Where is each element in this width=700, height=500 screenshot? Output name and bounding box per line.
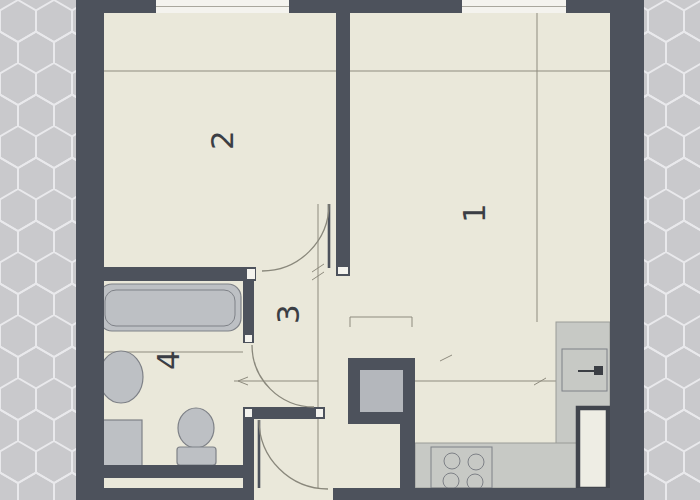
- floor-plan-photo: 1 2 3 4: [0, 0, 700, 500]
- hall-south-wall: [243, 407, 325, 419]
- washing-machine: [100, 420, 142, 466]
- wall-end-cap: [247, 269, 255, 279]
- interior-wall-room2-bath: [100, 267, 256, 281]
- exterior-wall-bottom: [104, 488, 243, 500]
- exterior-wall-top: [289, 0, 462, 13]
- exterior-wall-top: [104, 0, 156, 13]
- wall-end-cap: [245, 409, 252, 417]
- hex-wallpaper-left: [0, 0, 78, 500]
- bathtub: [99, 284, 241, 331]
- exterior-wall-left: [76, 0, 104, 500]
- wall-end-cap: [245, 335, 252, 342]
- room-label-3: 3: [270, 304, 306, 324]
- room-label-1: 1: [456, 203, 492, 223]
- kitchen-faucet-base: [594, 366, 603, 375]
- bathroom-south-wall: [100, 465, 243, 478]
- wall-end-cap: [316, 409, 323, 417]
- exterior-wall-right: [610, 0, 644, 500]
- hex-wallpaper-right: [642, 0, 700, 500]
- toilet-bowl: [178, 408, 214, 448]
- shaft: [348, 358, 415, 424]
- room-label-2: 2: [204, 130, 240, 150]
- vestibule-west-wall: [243, 419, 254, 500]
- wall-end-cap: [338, 267, 348, 274]
- exterior-wall-top: [566, 0, 612, 13]
- toilet-tank: [177, 447, 216, 465]
- floor-plan-drawing: 1 2 3 4: [0, 0, 700, 500]
- interior-wall-room1-room2: [336, 13, 350, 276]
- exterior-wall-bottom: [333, 488, 612, 500]
- bathroom-sink: [99, 351, 143, 403]
- kitchen-partition-wall: [400, 424, 415, 488]
- shaft-inner: [360, 370, 403, 412]
- bathroom-east-wall: [243, 281, 254, 343]
- fridge: [578, 408, 608, 489]
- room-label-4: 4: [150, 350, 186, 370]
